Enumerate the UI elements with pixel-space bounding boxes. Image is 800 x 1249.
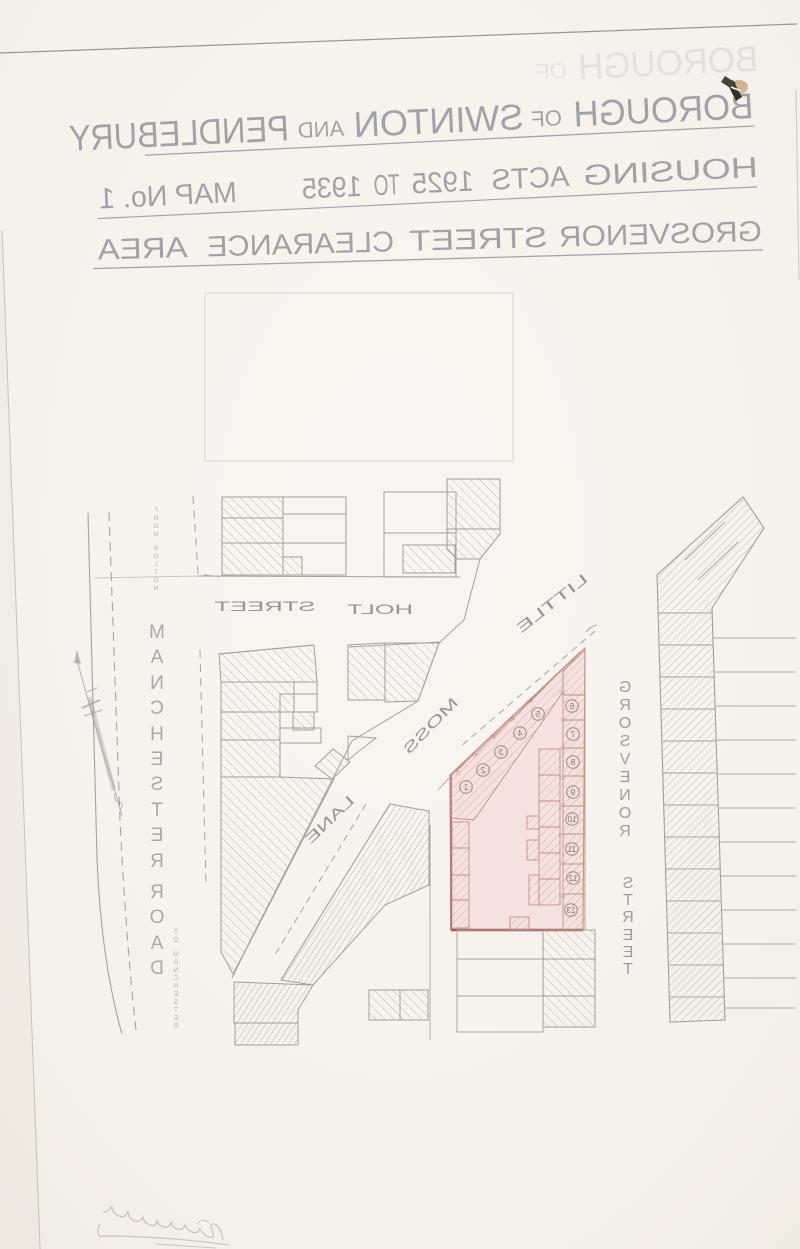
svg-text:11: 11 xyxy=(567,845,576,854)
svg-text:S: S xyxy=(151,774,164,795)
svg-text:9: 9 xyxy=(570,788,575,797)
svg-text:51: 51 xyxy=(455,771,461,777)
svg-text:R: R xyxy=(150,882,164,903)
svg-text:S: S xyxy=(623,875,634,892)
svg-text:N: N xyxy=(173,967,178,974)
svg-text:E: E xyxy=(173,1015,178,1022)
svg-text:O: O xyxy=(150,907,165,928)
svg-text:47: 47 xyxy=(490,735,496,741)
svg-text:F: F xyxy=(154,507,158,514)
svg-text:HOLT: HOLT xyxy=(346,601,413,617)
svg-text:3: 3 xyxy=(498,748,503,757)
svg-text:OF: OF xyxy=(536,58,568,84)
svg-text:N: N xyxy=(619,787,631,804)
svg-text:STREET: STREET xyxy=(409,222,548,258)
svg-text:A: A xyxy=(173,959,178,966)
svg-text:C: C xyxy=(173,975,178,982)
svg-text:E: E xyxy=(173,991,178,998)
svg-text:M: M xyxy=(153,531,158,538)
svg-text:7: 7 xyxy=(570,730,575,739)
svg-text:R: R xyxy=(153,515,158,522)
svg-text:O: O xyxy=(619,805,631,822)
svg-text:S: S xyxy=(620,733,631,750)
svg-text:MAP No. 1: MAP No. 1 xyxy=(98,177,237,216)
svg-text:CLEARANCE: CLEARANCE xyxy=(207,226,395,263)
svg-text:D: D xyxy=(150,958,164,979)
svg-text:M: M xyxy=(173,951,179,958)
svg-text:E: E xyxy=(623,944,634,961)
svg-text:R: R xyxy=(619,697,631,714)
svg-text:AREA: AREA xyxy=(97,232,189,267)
svg-text:STREET: STREET xyxy=(214,598,316,614)
svg-text:O: O xyxy=(173,937,179,944)
svg-text:49: 49 xyxy=(472,753,478,759)
svg-text:G: G xyxy=(619,679,631,696)
svg-text:N: N xyxy=(153,585,158,592)
svg-text:13: 13 xyxy=(566,906,575,915)
svg-text:M: M xyxy=(149,622,165,643)
svg-text:TO: TO xyxy=(373,169,401,202)
svg-text:43: 43 xyxy=(527,699,533,705)
svg-text:12: 12 xyxy=(568,874,577,883)
svg-text:E: E xyxy=(151,825,164,846)
svg-text:T: T xyxy=(623,961,633,978)
svg-text:1925: 1925 xyxy=(411,166,474,201)
svg-text:A: A xyxy=(150,933,163,954)
svg-text:8: 8 xyxy=(570,758,575,767)
svg-text:63: 63 xyxy=(559,803,565,809)
svg-text:E: E xyxy=(151,749,164,770)
svg-text:4: 4 xyxy=(517,729,522,738)
svg-text:61: 61 xyxy=(559,776,565,782)
svg-text:ACTS: ACTS xyxy=(491,161,570,197)
svg-text:O: O xyxy=(153,523,158,530)
svg-text:AND: AND xyxy=(297,116,345,143)
svg-text:BOROUGH: BOROUGH xyxy=(577,38,759,88)
svg-text:65: 65 xyxy=(558,833,564,839)
svg-text:E: E xyxy=(620,769,631,786)
svg-text:A: A xyxy=(150,647,163,668)
svg-text:1: 1 xyxy=(463,783,468,792)
svg-text:69: 69 xyxy=(559,894,565,900)
svg-text:O: O xyxy=(619,715,631,732)
svg-text:H: H xyxy=(150,724,164,745)
svg-text:L: L xyxy=(154,561,158,568)
svg-text:R: R xyxy=(173,1023,178,1030)
svg-text:C: C xyxy=(150,698,164,719)
svg-text:R: R xyxy=(619,823,631,840)
svg-text:6: 6 xyxy=(569,702,574,711)
svg-text:H: H xyxy=(173,983,178,990)
svg-text:57: 57 xyxy=(560,718,566,724)
svg-text:67: 67 xyxy=(559,862,565,868)
svg-text:T: T xyxy=(154,569,158,576)
svg-text:2: 2 xyxy=(480,766,485,775)
svg-text:GROSVENOR: GROSVENOR xyxy=(559,216,763,254)
svg-text:5: 5 xyxy=(535,710,540,719)
svg-text:V: V xyxy=(619,751,630,768)
svg-text:S: S xyxy=(173,999,178,1006)
svg-text:OF: OF xyxy=(531,105,563,131)
svg-text:T: T xyxy=(173,1007,178,1014)
svg-text:N: N xyxy=(150,673,164,694)
svg-text:T: T xyxy=(623,892,633,909)
svg-text:45: 45 xyxy=(509,717,515,723)
svg-text:10: 10 xyxy=(567,815,576,824)
svg-text:R: R xyxy=(622,909,634,926)
svg-text:T: T xyxy=(173,929,178,936)
svg-text:R: R xyxy=(150,851,164,872)
svg-text:O: O xyxy=(153,577,158,584)
svg-text:O: O xyxy=(153,553,158,560)
svg-text:E: E xyxy=(623,927,634,944)
svg-text:1935: 1935 xyxy=(301,171,362,206)
svg-text:B: B xyxy=(154,545,158,552)
svg-text:55: 55 xyxy=(559,690,565,696)
svg-text:59: 59 xyxy=(560,746,566,752)
svg-text:T: T xyxy=(151,800,163,821)
